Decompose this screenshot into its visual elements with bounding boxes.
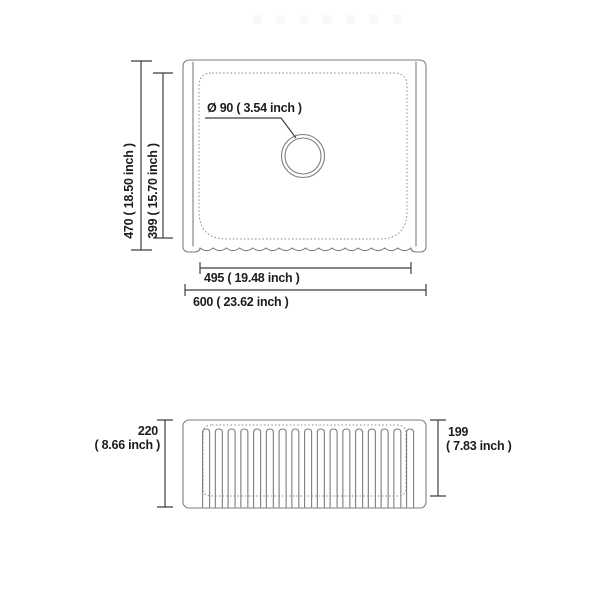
flute-rib bbox=[394, 429, 401, 507]
dim-399-label: 399 ( 15.70 inch ) bbox=[146, 143, 160, 239]
flute-rib bbox=[381, 429, 388, 507]
top-view: Ø 90 ( 3.54 inch ) bbox=[183, 60, 426, 252]
flute-rib bbox=[215, 429, 222, 507]
watermark-square bbox=[323, 15, 332, 24]
watermark-squares bbox=[253, 15, 401, 24]
flute-rib bbox=[254, 429, 261, 507]
flute-rib bbox=[317, 429, 324, 507]
sink-technical-drawing: Ø 90 ( 3.54 inch ) 470 ( 18.50 inch ) 39… bbox=[0, 0, 600, 600]
flute-rib bbox=[368, 429, 375, 507]
dim-220-inch: ( 8.66 inch ) bbox=[94, 438, 160, 452]
flute-rib bbox=[241, 429, 248, 507]
dim-495-label: 495 ( 19.48 inch ) bbox=[204, 271, 300, 285]
dim-220-value: 220 bbox=[138, 424, 158, 438]
flute-rib bbox=[356, 429, 363, 507]
dim-470-label: 470 ( 18.50 inch ) bbox=[122, 143, 136, 239]
flute-rib bbox=[279, 429, 286, 507]
front-view-dimensions: 220 ( 8.66 inch ) 199 ( 7.83 inch ) bbox=[94, 420, 511, 507]
top-view-width-dimensions: 495 ( 19.48 inch ) 600 ( 23.62 inch ) bbox=[185, 262, 426, 309]
dim-199-line bbox=[430, 420, 446, 496]
watermark-square bbox=[300, 15, 309, 24]
watermark-square bbox=[253, 15, 262, 24]
watermark-square bbox=[393, 15, 402, 24]
dim-220-line bbox=[157, 420, 173, 507]
flute-rib bbox=[266, 429, 273, 507]
sink-outer-outline bbox=[183, 60, 426, 252]
top-view-scallop-edge bbox=[200, 248, 411, 251]
drain-leader-line bbox=[205, 118, 296, 138]
top-view-height-dimensions: 470 ( 18.50 inch ) 399 ( 15.70 inch ) bbox=[122, 61, 173, 250]
flutes bbox=[203, 429, 414, 507]
flute-rib bbox=[305, 429, 312, 507]
drain-inner-circle bbox=[285, 138, 321, 174]
flute-rib bbox=[407, 429, 414, 507]
dim-199-value: 199 bbox=[448, 425, 468, 439]
drain-outer-circle bbox=[282, 135, 325, 178]
flute-rib bbox=[343, 429, 350, 507]
watermark-square bbox=[276, 15, 285, 24]
flute-rib bbox=[228, 429, 235, 507]
dim-600-label: 600 ( 23.62 inch ) bbox=[193, 295, 289, 309]
dim-199-inch: ( 7.83 inch ) bbox=[446, 439, 512, 453]
watermark-square bbox=[346, 15, 355, 24]
drain-dimension-label: Ø 90 ( 3.54 inch ) bbox=[207, 101, 302, 115]
technical-drawing-page: Ø 90 ( 3.54 inch ) 470 ( 18.50 inch ) 39… bbox=[0, 0, 600, 600]
watermark-square bbox=[370, 15, 379, 24]
front-view bbox=[183, 420, 426, 508]
bowl-hidden-edge bbox=[199, 73, 407, 239]
flute-rib bbox=[330, 429, 337, 507]
flute-rib bbox=[292, 429, 299, 507]
